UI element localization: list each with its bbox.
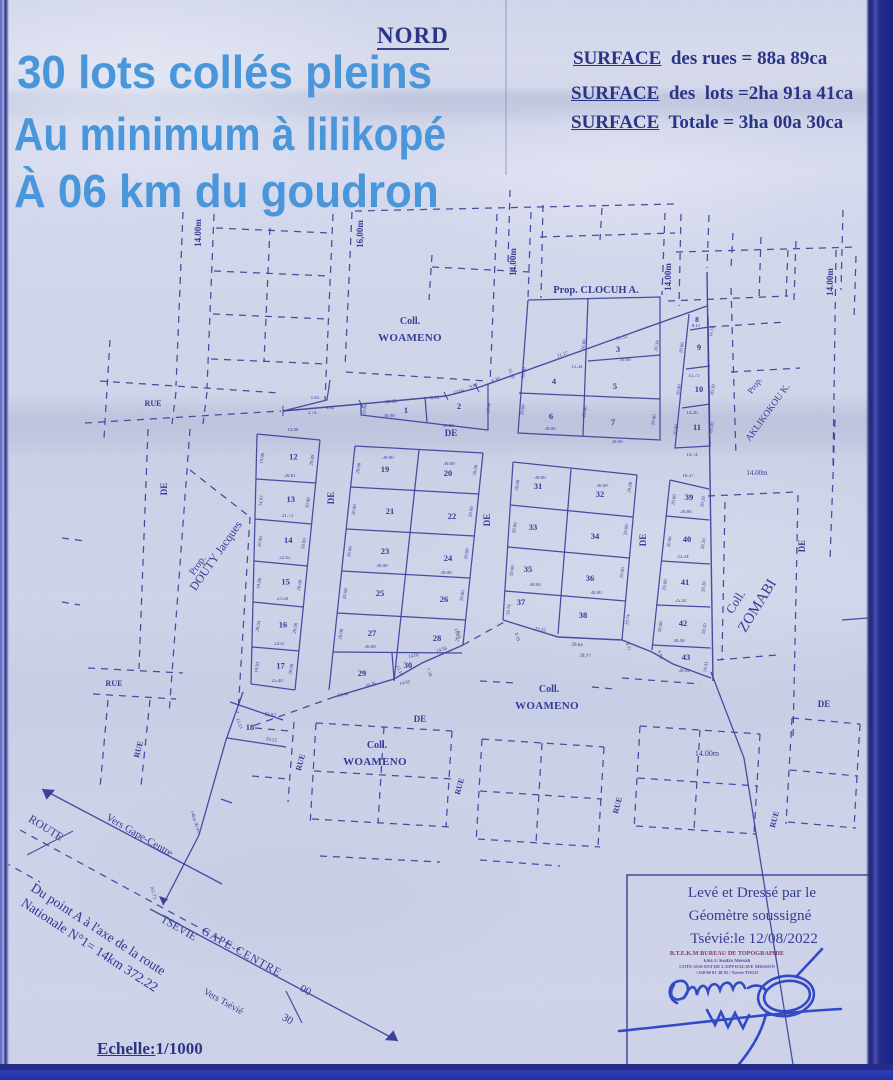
svg-text:37: 37 [517, 597, 526, 607]
svg-text:30.00: 30.00 [619, 358, 631, 363]
svg-text:WOAMENO: WOAMENO [515, 700, 579, 712]
svg-text:30.00: 30.00 [376, 564, 388, 569]
svg-text:28: 28 [433, 633, 442, 643]
svg-text:30.00: 30.00 [544, 427, 556, 432]
svg-text:11.73: 11.73 [688, 374, 700, 379]
svg-text:14.90: 14.90 [287, 428, 299, 433]
svg-text:14.00m: 14.00m [695, 749, 720, 758]
svg-text:30.00: 30.00 [590, 591, 602, 596]
svg-text:DE: DE [159, 483, 169, 496]
svg-text:+228 90 01 38 82 / Tsévié TOGO: +228 90 01 38 82 / Tsévié TOGO [696, 970, 759, 975]
svg-text:28.77: 28.77 [579, 654, 591, 660]
svg-text:24: 24 [444, 553, 453, 563]
svg-text:31: 31 [534, 481, 543, 491]
svg-text:8: 8 [695, 315, 699, 324]
svg-text:DE: DE [482, 514, 492, 527]
svg-text:14.26: 14.26 [686, 411, 698, 416]
svg-text:30.00: 30.00 [443, 462, 455, 467]
svg-text:11.34: 11.34 [571, 365, 583, 370]
svg-text:34: 34 [591, 531, 600, 541]
svg-text:Levé et Dressé par le: Levé et Dressé par le [688, 884, 816, 901]
svg-text:39: 39 [685, 492, 694, 502]
svg-text:Géomètre soussigné: Géomètre soussigné [689, 907, 812, 924]
svg-text:30.00: 30.00 [440, 571, 452, 576]
svg-text:RUE: RUE [145, 399, 162, 408]
svg-text:Tsévié:le 12/08/2022: Tsévié:le 12/08/2022 [690, 930, 818, 947]
svg-text:14.00m: 14.00m [663, 263, 673, 291]
svg-text:30.00: 30.00 [383, 414, 395, 419]
svg-text:Coll.: Coll. [400, 316, 421, 327]
svg-text:5: 5 [613, 381, 617, 391]
svg-text:14.00m: 14.00m [825, 268, 835, 296]
svg-text:DE: DE [326, 492, 336, 505]
svg-text:WOAMENO: WOAMENO [378, 332, 442, 344]
svg-text:30.00: 30.00 [534, 476, 546, 481]
svg-text:B.T.E.K.M BUREAU DE TOPOGRAPHI: B.T.E.K.M BUREAU DE TOPOGRAPHIE [670, 950, 784, 957]
svg-text:1.83: 1.83 [311, 396, 320, 401]
svg-text:13: 13 [287, 494, 296, 504]
svg-text:25: 25 [376, 588, 385, 598]
svg-text:14.00m: 14.00m [508, 248, 518, 276]
svg-text:COTE SUD-EST DE L EPP DALAVE M: COTE SUD-EST DE L EPP DALAVE MISSION [679, 964, 775, 969]
svg-text:25.92: 25.92 [675, 599, 687, 604]
svg-text:29: 29 [358, 668, 367, 678]
svg-text:15: 15 [281, 577, 290, 587]
svg-text:16,00m: 16,00m [355, 220, 365, 248]
svg-text:Prop. CLOCUH A.: Prop. CLOCUH A. [553, 285, 639, 296]
svg-text:23.58: 23.58 [277, 597, 289, 602]
svg-text:1: 1 [404, 405, 408, 415]
svg-text:26: 26 [440, 594, 449, 604]
svg-text:19: 19 [381, 464, 390, 474]
svg-text:41: 41 [681, 577, 690, 587]
svg-text:6: 6 [549, 411, 553, 421]
svg-text:23.34: 23.34 [677, 555, 689, 560]
svg-text:10: 10 [695, 384, 704, 394]
svg-text:30.00: 30.00 [529, 583, 541, 588]
svg-text:DE: DE [818, 699, 831, 709]
svg-text:DE: DE [638, 534, 648, 547]
svg-text:40: 40 [683, 534, 692, 544]
svg-text:WOAMENO: WOAMENO [343, 756, 407, 768]
svg-text:42: 42 [679, 618, 688, 628]
svg-text:9: 9 [697, 342, 701, 352]
svg-text:14.00m: 14.00m [746, 469, 768, 477]
svg-text:2: 2 [457, 401, 461, 411]
svg-text:36: 36 [586, 573, 595, 583]
svg-text:33: 33 [529, 522, 538, 532]
svg-text:Coll.: Coll. [367, 740, 388, 751]
svg-text:18.37: 18.37 [682, 474, 694, 479]
svg-text:22.65: 22.65 [279, 556, 291, 561]
svg-text:14.74: 14.74 [686, 453, 698, 458]
svg-text:24.47: 24.47 [274, 642, 286, 647]
svg-text:17: 17 [276, 661, 285, 671]
svg-text:25.40: 25.40 [272, 679, 284, 684]
svg-text:30.00: 30.00 [596, 484, 608, 489]
svg-text:27: 27 [368, 628, 377, 638]
svg-text:28.40: 28.40 [673, 639, 685, 644]
svg-text:RUE: RUE [106, 679, 123, 688]
svg-text:4.32: 4.32 [326, 406, 335, 411]
svg-text:35: 35 [524, 564, 533, 574]
svg-text:43: 43 [682, 652, 691, 662]
svg-text:8.11: 8.11 [692, 324, 701, 329]
svg-text:21.73: 21.73 [282, 514, 294, 519]
svg-text:18: 18 [246, 722, 255, 732]
svg-text:20.86: 20.86 [680, 510, 692, 515]
svg-text:DE: DE [414, 714, 427, 724]
svg-text:30.00: 30.00 [611, 440, 623, 445]
svg-text:20: 20 [444, 468, 453, 478]
svg-text:14.00m: 14.00m [193, 219, 203, 247]
svg-text:29.64: 29.64 [571, 643, 583, 649]
svg-text:30.00: 30.00 [382, 456, 394, 461]
svg-text:21: 21 [386, 506, 395, 516]
svg-text:16: 16 [279, 620, 288, 630]
svg-text:23: 23 [381, 546, 390, 556]
svg-text:3: 3 [616, 344, 620, 354]
svg-text:30.65: 30.65 [385, 400, 397, 406]
svg-text:12: 12 [289, 452, 298, 462]
svg-text:30.00: 30.00 [364, 645, 376, 650]
svg-text:DE: DE [445, 428, 458, 438]
svg-text:38: 38 [579, 610, 588, 620]
svg-text:Coll.: Coll. [539, 684, 560, 695]
svg-text:20.81: 20.81 [284, 474, 296, 479]
svg-text:DE: DE [797, 540, 807, 553]
svg-text:3.74: 3.74 [308, 411, 317, 416]
svg-text:11: 11 [693, 422, 701, 432]
svg-text:22: 22 [448, 511, 457, 521]
svg-text:32: 32 [596, 489, 605, 499]
svg-text:14: 14 [284, 535, 293, 545]
